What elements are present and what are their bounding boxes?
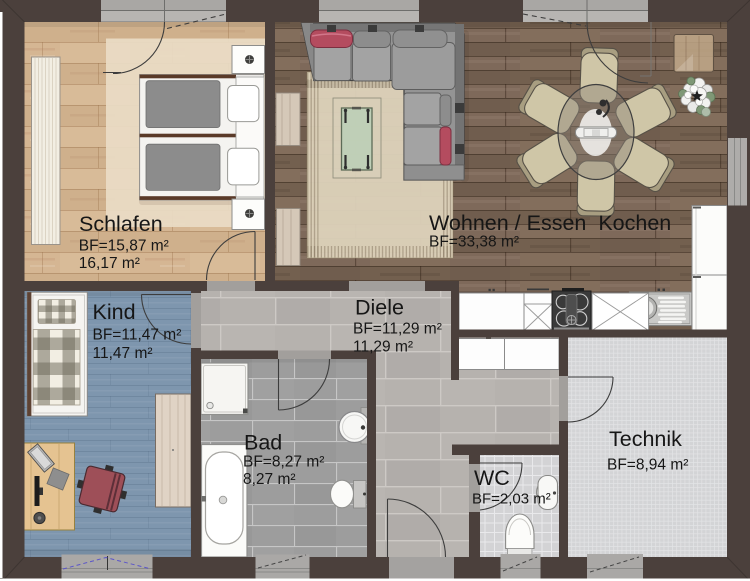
- svg-text:Technik: Technik: [609, 427, 682, 451]
- svg-text:16,17 m²: 16,17 m²: [79, 255, 140, 272]
- svg-text:BF=33,38 m²: BF=33,38 m²: [429, 234, 519, 251]
- svg-text:BF=8,27 m²: BF=8,27 m²: [243, 454, 324, 471]
- svg-text:BF=11,29 m²: BF=11,29 m²: [353, 321, 442, 338]
- svg-text:11,47 m²: 11,47 m²: [93, 345, 153, 362]
- svg-text:BF=11,47 m²: BF=11,47 m²: [93, 327, 182, 344]
- svg-text:Wohnen / Essen Kochen: Wohnen / Essen Kochen: [429, 211, 671, 235]
- svg-text:8,27 m²: 8,27 m²: [243, 471, 296, 488]
- svg-text:Bad: Bad: [244, 431, 282, 455]
- svg-text:WC: WC: [474, 466, 510, 490]
- svg-text:Schlafen: Schlafen: [79, 212, 163, 236]
- svg-text:11,29 m²: 11,29 m²: [353, 339, 413, 356]
- svg-text:BF=8,94 m²: BF=8,94 m²: [607, 457, 688, 474]
- svg-text:BF=2,03 m²: BF=2,03 m²: [472, 491, 551, 508]
- svg-text:Diele: Diele: [355, 296, 404, 320]
- svg-text:Kind: Kind: [93, 300, 136, 324]
- svg-text:BF=15,87 m²: BF=15,87 m²: [79, 237, 169, 254]
